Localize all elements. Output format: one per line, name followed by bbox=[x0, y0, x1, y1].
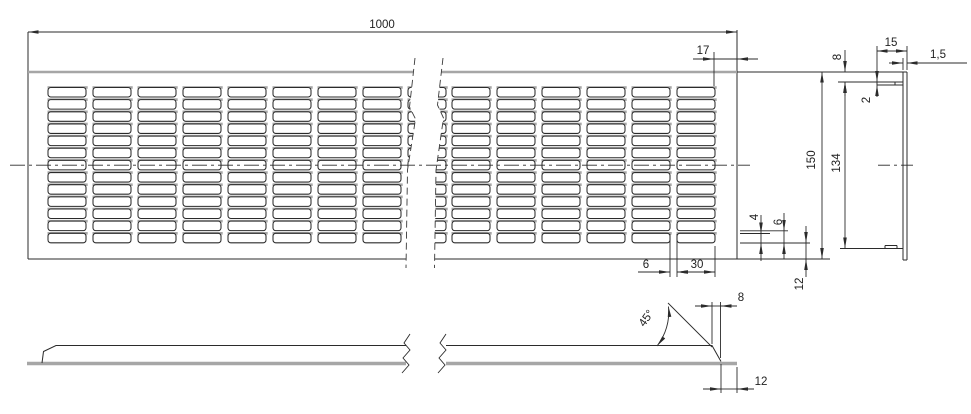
slot-opening bbox=[632, 100, 670, 110]
slot bbox=[273, 208, 313, 219]
slot bbox=[138, 196, 178, 207]
slot bbox=[452, 159, 492, 170]
slot-opening bbox=[138, 233, 176, 243]
slot bbox=[183, 123, 223, 134]
slot bbox=[318, 171, 358, 182]
slot-opening bbox=[542, 148, 580, 158]
slot-opening bbox=[93, 209, 131, 219]
slot bbox=[677, 159, 717, 170]
slot-opening bbox=[542, 112, 580, 122]
slot bbox=[183, 86, 223, 97]
slot-opening bbox=[138, 221, 176, 231]
slot bbox=[363, 86, 403, 97]
label-row-pitch: 6 bbox=[773, 219, 785, 225]
slot bbox=[228, 86, 268, 97]
slot-opening bbox=[318, 185, 356, 195]
slot bbox=[632, 183, 672, 194]
slot bbox=[138, 171, 178, 182]
slot-opening bbox=[677, 136, 715, 146]
slot bbox=[497, 196, 537, 207]
slot bbox=[677, 135, 717, 146]
slot-opening bbox=[452, 185, 490, 195]
slot bbox=[632, 220, 672, 231]
slot bbox=[542, 171, 582, 182]
slot-opening bbox=[228, 148, 266, 158]
slot-opening bbox=[363, 221, 401, 231]
slot-pattern bbox=[48, 86, 717, 243]
slot bbox=[542, 159, 582, 170]
slot-opening bbox=[48, 148, 86, 158]
drawing-canvas: 1000 17 150 4 6 12 6 30 15 1,5 8 2 134 8… bbox=[0, 0, 971, 414]
slot-opening bbox=[452, 233, 490, 243]
slot bbox=[497, 220, 537, 231]
slot bbox=[497, 135, 537, 146]
slot-opening bbox=[632, 233, 670, 243]
slot-opening bbox=[587, 112, 625, 122]
slot bbox=[318, 208, 358, 219]
slot-opening bbox=[273, 173, 311, 183]
slot bbox=[363, 171, 403, 182]
side-section-view bbox=[838, 72, 917, 260]
slot bbox=[363, 111, 403, 122]
slot-opening bbox=[48, 124, 86, 134]
slot bbox=[677, 232, 717, 243]
ext-45-diagonal bbox=[668, 303, 712, 347]
slot bbox=[183, 220, 223, 231]
slot-opening bbox=[677, 124, 715, 134]
slot bbox=[228, 196, 268, 207]
slot-opening bbox=[183, 136, 221, 146]
slot bbox=[497, 159, 537, 170]
slot-opening bbox=[632, 112, 670, 122]
slot bbox=[138, 98, 178, 109]
slot bbox=[542, 111, 582, 122]
slot-opening bbox=[93, 124, 131, 134]
slot bbox=[228, 220, 268, 231]
slot-opening bbox=[677, 233, 715, 243]
slot-opening bbox=[677, 88, 715, 98]
slot bbox=[587, 159, 627, 170]
slot bbox=[183, 98, 223, 109]
slot bbox=[318, 98, 358, 109]
elevation-break-left bbox=[402, 334, 410, 373]
slot-opening bbox=[318, 88, 356, 98]
slot bbox=[93, 232, 133, 243]
slot bbox=[542, 183, 582, 194]
slot bbox=[632, 159, 672, 170]
elevation-view bbox=[27, 334, 737, 373]
slot-opening bbox=[677, 221, 715, 231]
slot-opening bbox=[542, 136, 580, 146]
slot-opening bbox=[138, 100, 176, 110]
slot bbox=[318, 159, 358, 170]
slot bbox=[587, 86, 627, 97]
slot-opening bbox=[273, 124, 311, 134]
slot-opening bbox=[363, 100, 401, 110]
label-right-margin: 17 bbox=[697, 45, 710, 57]
slot-opening bbox=[677, 148, 715, 158]
slot-opening bbox=[363, 88, 401, 98]
slot bbox=[452, 232, 492, 243]
label-flange-thickness: 2 bbox=[861, 97, 873, 103]
slot bbox=[677, 171, 717, 182]
slot-opening bbox=[632, 148, 670, 158]
slot-opening bbox=[48, 233, 86, 243]
slot bbox=[363, 220, 403, 231]
slot-opening bbox=[93, 148, 131, 158]
slot-opening bbox=[363, 185, 401, 195]
slot-opening bbox=[318, 100, 356, 110]
slot bbox=[677, 86, 717, 97]
slot-opening bbox=[93, 100, 131, 110]
slot bbox=[677, 98, 717, 109]
slot-opening bbox=[48, 136, 86, 146]
slot bbox=[363, 232, 403, 243]
slot bbox=[228, 135, 268, 146]
slot bbox=[93, 98, 133, 109]
label-bend-offset: 8 bbox=[738, 292, 744, 304]
elevation-dimensions bbox=[657, 302, 754, 393]
slot-opening bbox=[587, 124, 625, 134]
slot-opening bbox=[93, 112, 131, 122]
slot bbox=[228, 123, 268, 134]
slot bbox=[587, 147, 627, 158]
label-thickness: 1,5 bbox=[930, 49, 946, 61]
slot bbox=[48, 135, 88, 146]
slot-opening bbox=[452, 209, 490, 219]
slot bbox=[497, 123, 537, 134]
slot bbox=[138, 183, 178, 194]
slot bbox=[138, 159, 178, 170]
slot bbox=[138, 220, 178, 231]
slot-opening bbox=[138, 148, 176, 158]
slot bbox=[452, 220, 492, 231]
slot bbox=[452, 135, 492, 146]
slot bbox=[273, 159, 313, 170]
slot bbox=[48, 171, 88, 182]
slot bbox=[318, 232, 358, 243]
slot-opening bbox=[228, 185, 266, 195]
slot bbox=[183, 232, 223, 243]
slot bbox=[363, 208, 403, 219]
label-slot-height: 4 bbox=[749, 213, 761, 220]
slot bbox=[273, 183, 313, 194]
slot-opening bbox=[273, 233, 311, 243]
slot-opening bbox=[318, 124, 356, 134]
slot-opening bbox=[183, 112, 221, 122]
slot bbox=[542, 98, 582, 109]
slot bbox=[183, 147, 223, 158]
slot-opening bbox=[318, 136, 356, 146]
slot-opening bbox=[138, 112, 176, 122]
slot bbox=[497, 147, 537, 158]
slot bbox=[497, 171, 537, 182]
slot bbox=[497, 86, 537, 97]
slot bbox=[93, 220, 133, 231]
slot-opening bbox=[273, 100, 311, 110]
slot-opening bbox=[632, 173, 670, 183]
slot-opening bbox=[497, 185, 535, 195]
slot bbox=[93, 171, 133, 182]
slot-opening bbox=[542, 233, 580, 243]
slot-opening bbox=[273, 148, 311, 158]
slot-opening bbox=[452, 148, 490, 158]
slot-opening bbox=[542, 221, 580, 231]
slot-opening bbox=[632, 136, 670, 146]
slot-opening bbox=[452, 124, 490, 134]
slot-opening bbox=[587, 100, 625, 110]
slot-opening bbox=[318, 148, 356, 158]
slot bbox=[273, 196, 313, 207]
slot-opening bbox=[273, 185, 311, 195]
slot bbox=[48, 220, 88, 231]
slot bbox=[93, 147, 133, 158]
slot-opening bbox=[632, 124, 670, 134]
slot-opening bbox=[48, 88, 86, 98]
slot-opening bbox=[228, 88, 266, 98]
slot-opening bbox=[677, 173, 715, 183]
slot bbox=[632, 86, 672, 97]
slot bbox=[318, 123, 358, 134]
slot-opening bbox=[452, 88, 490, 98]
slot-opening bbox=[228, 173, 266, 183]
slot-opening bbox=[318, 112, 356, 122]
slot-opening bbox=[452, 221, 490, 231]
slot-opening bbox=[587, 148, 625, 158]
label-bend-angle: 45° bbox=[637, 308, 657, 329]
slot bbox=[48, 183, 88, 194]
slot bbox=[587, 196, 627, 207]
slot bbox=[497, 183, 537, 194]
slot bbox=[48, 111, 88, 122]
slot-opening bbox=[93, 233, 131, 243]
slot-opening bbox=[587, 221, 625, 231]
slot-opening bbox=[228, 112, 266, 122]
slot bbox=[632, 98, 672, 109]
slot-opening bbox=[497, 136, 535, 146]
slot-opening bbox=[318, 173, 356, 183]
slot bbox=[273, 220, 313, 231]
slot bbox=[632, 111, 672, 122]
slot-opening bbox=[228, 209, 266, 219]
slot bbox=[228, 111, 268, 122]
slot-opening bbox=[587, 209, 625, 219]
label-height: 150 bbox=[806, 150, 818, 169]
slot-opening bbox=[48, 197, 86, 207]
slot-opening bbox=[228, 221, 266, 231]
slot-opening bbox=[48, 173, 86, 183]
slot bbox=[93, 196, 133, 207]
elevation-profile-left bbox=[42, 346, 406, 364]
slot bbox=[542, 208, 582, 219]
slot bbox=[228, 147, 268, 158]
slot bbox=[48, 123, 88, 134]
slot-opening bbox=[542, 88, 580, 98]
slot bbox=[587, 232, 627, 243]
slot-opening bbox=[452, 100, 490, 110]
slot bbox=[183, 159, 223, 170]
slot-opening bbox=[138, 88, 176, 98]
slot bbox=[363, 98, 403, 109]
slot bbox=[93, 111, 133, 122]
slot-opening bbox=[542, 209, 580, 219]
slot bbox=[183, 196, 223, 207]
slot-opening bbox=[138, 136, 176, 146]
slot bbox=[452, 171, 492, 182]
slot bbox=[48, 196, 88, 207]
slot bbox=[93, 123, 133, 134]
slot bbox=[228, 208, 268, 219]
slot bbox=[228, 232, 268, 243]
slot bbox=[93, 183, 133, 194]
slot-opening bbox=[632, 221, 670, 231]
slot bbox=[318, 147, 358, 158]
slot bbox=[587, 220, 627, 231]
slot bbox=[273, 98, 313, 109]
dim-arc-45 bbox=[657, 307, 669, 347]
slot bbox=[632, 135, 672, 146]
slot-opening bbox=[273, 197, 311, 207]
slot-opening bbox=[497, 209, 535, 219]
slot-opening bbox=[497, 148, 535, 158]
slot-opening bbox=[48, 112, 86, 122]
slot-opening bbox=[452, 197, 490, 207]
slot-opening bbox=[93, 88, 131, 98]
slot-opening bbox=[542, 197, 580, 207]
label-slot-width: 30 bbox=[691, 259, 704, 271]
slot bbox=[542, 232, 582, 243]
slot bbox=[497, 232, 537, 243]
side-dimensions bbox=[845, 46, 967, 249]
slot bbox=[318, 196, 358, 207]
slot bbox=[363, 123, 403, 134]
slot bbox=[497, 111, 537, 122]
slot-opening bbox=[363, 136, 401, 146]
slot bbox=[183, 171, 223, 182]
slot-opening bbox=[318, 209, 356, 219]
slot-opening bbox=[677, 209, 715, 219]
slot bbox=[677, 123, 717, 134]
slot bbox=[587, 111, 627, 122]
slot bbox=[138, 111, 178, 122]
slot bbox=[48, 208, 88, 219]
slot-opening bbox=[228, 100, 266, 110]
slot bbox=[228, 98, 268, 109]
slot-opening bbox=[228, 124, 266, 134]
slot-opening bbox=[93, 185, 131, 195]
slot bbox=[632, 147, 672, 158]
slot bbox=[587, 123, 627, 134]
slot bbox=[452, 98, 492, 109]
slot-opening bbox=[183, 209, 221, 219]
slot-opening bbox=[183, 221, 221, 231]
slot-opening bbox=[497, 124, 535, 134]
slot bbox=[273, 123, 313, 134]
slot bbox=[452, 111, 492, 122]
slot-opening bbox=[183, 148, 221, 158]
slot bbox=[183, 183, 223, 194]
slot bbox=[452, 147, 492, 158]
slot-opening bbox=[273, 136, 311, 146]
slot-opening bbox=[48, 221, 86, 231]
slot-opening bbox=[587, 185, 625, 195]
slot-opening bbox=[318, 197, 356, 207]
slot bbox=[138, 123, 178, 134]
slot bbox=[318, 220, 358, 231]
slot-opening bbox=[497, 197, 535, 207]
slot bbox=[587, 171, 627, 182]
slot bbox=[452, 123, 492, 134]
slot-opening bbox=[542, 100, 580, 110]
slot-opening bbox=[497, 112, 535, 122]
label-bottom-margin: 12 bbox=[794, 278, 806, 291]
slot bbox=[542, 220, 582, 231]
slot bbox=[677, 147, 717, 158]
slot bbox=[452, 208, 492, 219]
elevation-break-right bbox=[438, 334, 446, 373]
slot-opening bbox=[48, 209, 86, 219]
slot-opening bbox=[497, 88, 535, 98]
slot bbox=[363, 196, 403, 207]
slot bbox=[632, 123, 672, 134]
slot bbox=[677, 220, 717, 231]
slot bbox=[318, 86, 358, 97]
slot-opening bbox=[138, 173, 176, 183]
slot-opening bbox=[632, 88, 670, 98]
slot bbox=[677, 208, 717, 219]
slot bbox=[318, 135, 358, 146]
slot bbox=[138, 86, 178, 97]
slot-opening bbox=[273, 112, 311, 122]
slot bbox=[452, 183, 492, 194]
slot-opening bbox=[677, 185, 715, 195]
slot-opening bbox=[183, 197, 221, 207]
slot-opening bbox=[363, 148, 401, 158]
slot bbox=[93, 135, 133, 146]
slot-opening bbox=[587, 88, 625, 98]
slot-opening bbox=[273, 221, 311, 231]
slot bbox=[542, 196, 582, 207]
slot-opening bbox=[183, 173, 221, 183]
slot bbox=[587, 98, 627, 109]
slot bbox=[632, 208, 672, 219]
slot bbox=[48, 147, 88, 158]
slot-opening bbox=[93, 173, 131, 183]
slot-opening bbox=[183, 124, 221, 134]
slot bbox=[542, 135, 582, 146]
slot bbox=[677, 196, 717, 207]
slot-opening bbox=[273, 209, 311, 219]
slot-opening bbox=[363, 112, 401, 122]
slot bbox=[183, 208, 223, 219]
slot bbox=[228, 183, 268, 194]
slot-opening bbox=[183, 88, 221, 98]
slot-opening bbox=[48, 100, 86, 110]
slot-opening bbox=[587, 197, 625, 207]
slot-opening bbox=[363, 197, 401, 207]
slot-opening bbox=[452, 136, 490, 146]
slot-opening bbox=[497, 100, 535, 110]
slot bbox=[273, 171, 313, 182]
slot-opening bbox=[318, 221, 356, 231]
slot bbox=[542, 123, 582, 134]
slot bbox=[273, 135, 313, 146]
slot bbox=[318, 183, 358, 194]
slot-opening bbox=[183, 100, 221, 110]
slot-opening bbox=[228, 233, 266, 243]
label-flange-length: 15 bbox=[885, 37, 898, 49]
slot bbox=[48, 98, 88, 109]
